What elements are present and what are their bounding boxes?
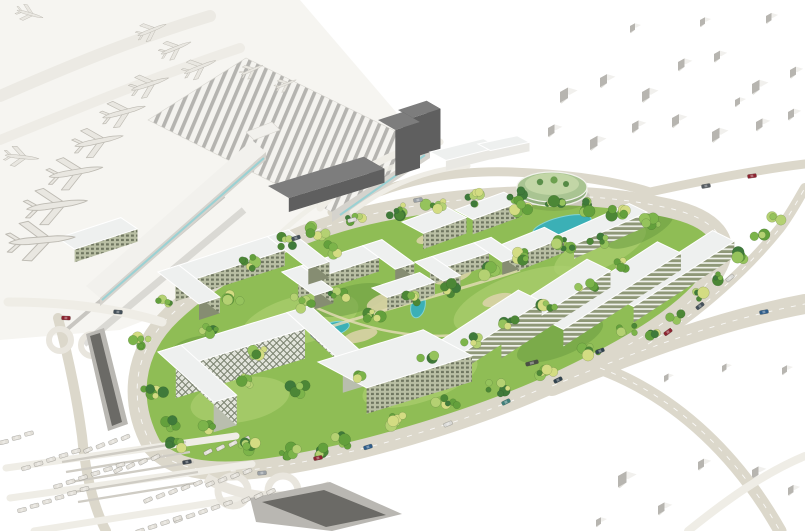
aerial-masterplan-rendering: Aerial rendering of an airport terminal …	[0, 0, 805, 531]
tree-cluster	[512, 247, 528, 265]
car	[61, 316, 70, 320]
car	[113, 310, 122, 315]
rendering-canvas: Aerial rendering of an airport terminal …	[0, 0, 805, 531]
car	[257, 471, 266, 476]
